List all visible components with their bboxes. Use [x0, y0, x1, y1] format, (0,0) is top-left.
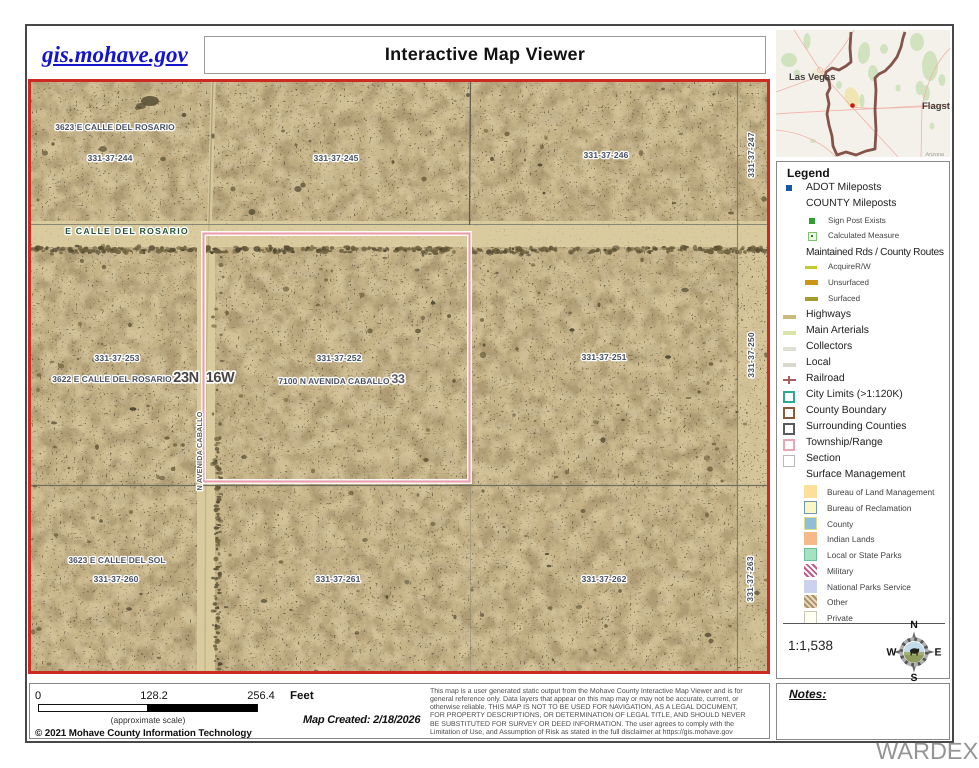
- svg-text:331-37-244: 331-37-244: [88, 153, 133, 163]
- svg-text:3623 E CALLE DEL SOL: 3623 E CALLE DEL SOL: [68, 555, 165, 565]
- svg-text:331-37-245: 331-37-245: [314, 153, 359, 163]
- svg-text:7100 N AVENIDA CABALLO: 7100 N AVENIDA CABALLO: [278, 376, 390, 386]
- svg-text:S: S: [910, 672, 917, 682]
- svg-text:N AVENIDA CABALLO: N AVENIDA CABALLO: [195, 411, 204, 490]
- svg-text:331-37-260: 331-37-260: [94, 574, 139, 584]
- svg-text:N: N: [910, 619, 918, 631]
- svg-text:E CALLE DEL ROSARIO: E CALLE DEL ROSARIO: [65, 226, 189, 236]
- svg-text:33: 33: [391, 372, 405, 386]
- svg-text:Flagsta: Flagsta: [922, 101, 950, 112]
- svg-text:3623 E CALLE DEL ROSARIO: 3623 E CALLE DEL ROSARIO: [55, 122, 175, 132]
- svg-text:3622 E CALLE DEL ROSARIO: 3622 E CALLE DEL ROSARIO: [52, 374, 172, 384]
- svg-text:W: W: [887, 647, 897, 659]
- svg-text:331-37-251: 331-37-251: [582, 352, 627, 362]
- svg-text:331-37-263: 331-37-263: [745, 556, 755, 602]
- svg-text:331-37-247: 331-37-247: [746, 132, 756, 178]
- svg-text:331-37-253: 331-37-253: [95, 353, 140, 363]
- svg-text:Arizona: Arizona: [924, 152, 944, 157]
- svg-text:331-37-250: 331-37-250: [746, 332, 756, 378]
- svg-text:16W: 16W: [206, 370, 235, 386]
- svg-text:331-37-252: 331-37-252: [317, 353, 362, 363]
- svg-text:E: E: [934, 647, 941, 659]
- svg-text:23N: 23N: [173, 370, 198, 386]
- svg-text:331-37-262: 331-37-262: [582, 574, 627, 584]
- svg-text:331-37-246: 331-37-246: [584, 150, 629, 160]
- svg-text:Las Vegas: Las Vegas: [789, 72, 835, 83]
- svg-text:331-37-261: 331-37-261: [316, 574, 361, 584]
